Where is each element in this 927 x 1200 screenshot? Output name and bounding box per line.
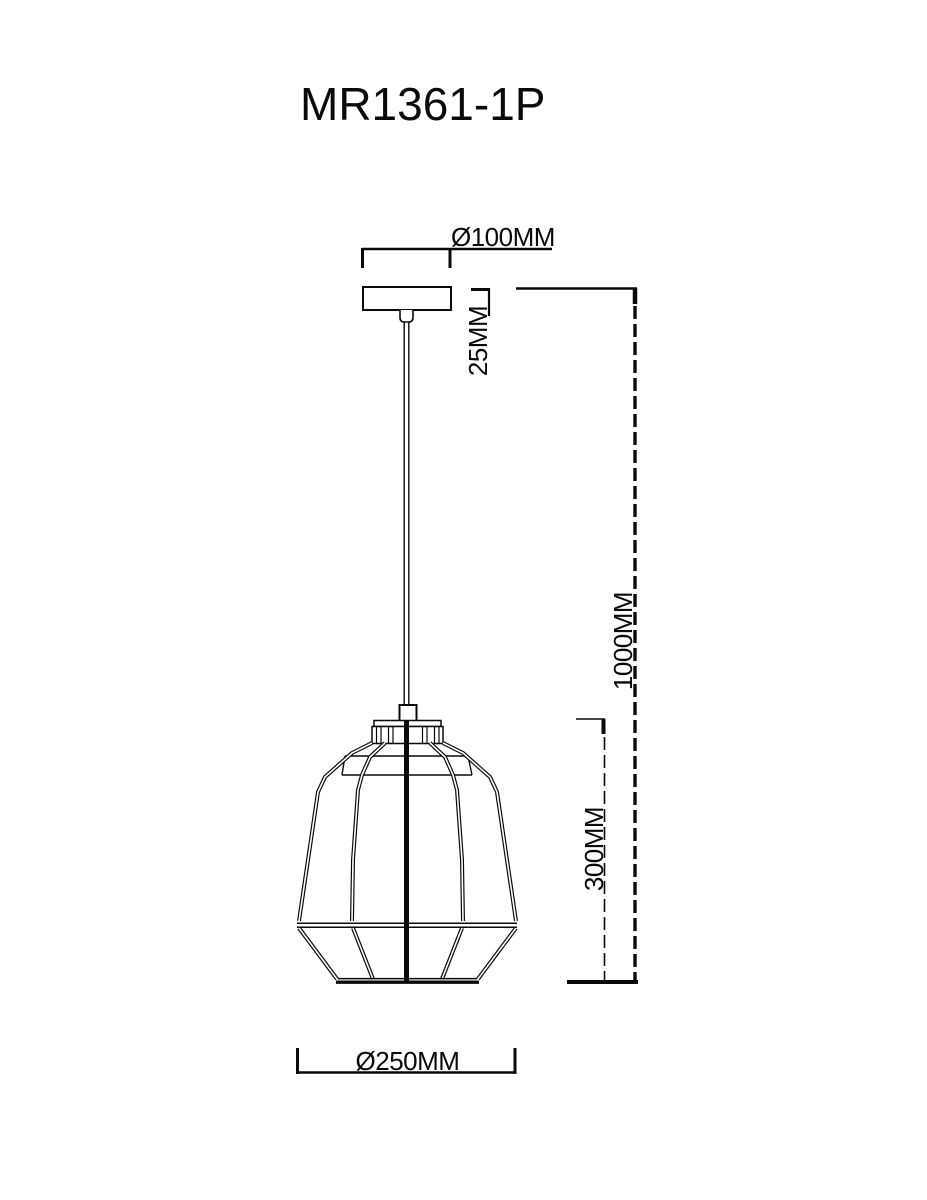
canopy-diameter-label: Ø100MM: [451, 224, 555, 250]
overall-drop-label: 1000MM: [610, 586, 636, 696]
technical-drawing-page: MR1361-1P Ø100MM 25MM 1000MM 300MM Ø250M…: [0, 0, 927, 1200]
canopy-height-label: 25MM: [465, 286, 491, 396]
lamp-shade-cage: [297, 721, 517, 982]
suspension-cord: [404, 322, 409, 706]
lamp-line-drawing: [0, 0, 927, 1200]
socket: [400, 705, 417, 721]
shade-diameter-label: Ø250MM: [350, 1048, 465, 1074]
canopy-stem: [400, 310, 413, 322]
product-code-title: MR1361-1P: [300, 80, 545, 128]
ceiling-canopy: [363, 287, 451, 322]
shade-height-label: 300MM: [581, 794, 607, 904]
